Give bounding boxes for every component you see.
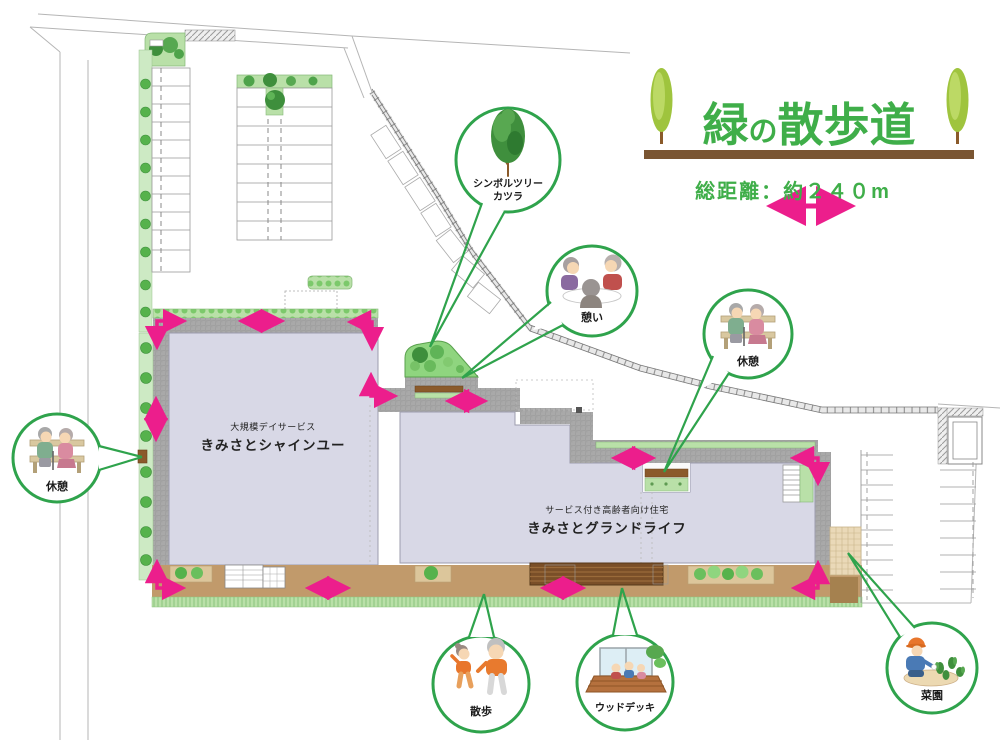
page-title: 緑の散歩道	[702, 102, 915, 148]
poplar-tree-icon	[644, 62, 678, 148]
label-kyukei-left: 休憩	[27, 481, 87, 495]
total-distance-label: 総距離：約２４０m	[628, 175, 958, 204]
label-wood-deck: ウッドデッキ	[575, 703, 675, 716]
parking-lot-east	[830, 408, 983, 603]
label-kyukei-right: 休憩	[718, 356, 778, 370]
label-senior-housing: サービス付き高齢者向け住宅 きみさとグランドライフ	[492, 503, 722, 537]
site-plan-page: 緑の散歩道 総距離：約２４０m 大規模デイサービス きみさとシャインユー サービ…	[0, 0, 1000, 740]
bench	[645, 469, 688, 477]
label-ikoi: 憩い	[562, 312, 622, 326]
parking-lot-northwest	[139, 30, 235, 332]
callout-saien	[848, 553, 977, 713]
label-sanpo: 散歩	[451, 706, 511, 720]
parking-lot-central	[237, 73, 332, 240]
building-senior-housing	[400, 412, 815, 563]
label-day-service: 大規模デイサービス きみさとシャインユー	[163, 420, 383, 454]
bench	[415, 386, 463, 392]
poplar-tree-icon	[940, 62, 974, 148]
label-symbol-tree: シンボルツリー カツラ	[458, 179, 558, 204]
wood-deck	[530, 563, 663, 585]
label-saien: 菜園	[902, 690, 962, 704]
title-underline-bar	[644, 150, 974, 159]
mound-garden	[378, 341, 520, 412]
title-block: 緑の散歩道 総距離：約２４０m	[644, 62, 974, 204]
